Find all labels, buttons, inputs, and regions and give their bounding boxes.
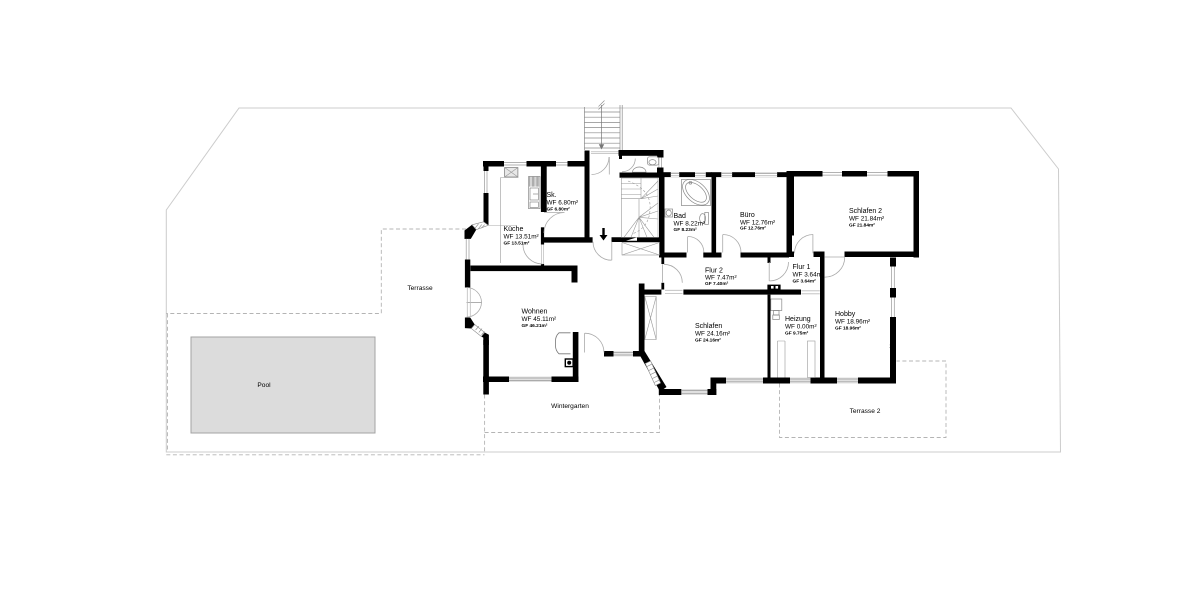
svg-text:GF 18.96m²: GF 18.96m²: [835, 326, 861, 332]
svg-text:WF 18.96m²: WF 18.96m²: [835, 319, 870, 326]
svg-text:WF 24.16m²: WF 24.16m²: [695, 331, 730, 338]
svg-text:GF 21.84m²: GF 21.84m²: [849, 223, 875, 229]
svg-text:Flur 2: Flur 2: [705, 267, 723, 274]
svg-text:WF 8.22m²: WF 8.22m²: [674, 221, 706, 228]
svg-text:WF 45.11m²: WF 45.11m²: [522, 316, 557, 323]
svg-text:WF 12.76m²: WF 12.76m²: [740, 219, 775, 226]
svg-text:Wintergarten: Wintergarten: [551, 403, 589, 410]
svg-text:WF 6.80m²: WF 6.80m²: [547, 200, 579, 207]
svg-text:WF 21.84m²: WF 21.84m²: [849, 216, 884, 223]
svg-text:WF 3.64m²: WF 3.64m²: [793, 272, 825, 279]
svg-text:Sk.: Sk.: [547, 192, 557, 199]
svg-text:Schlafen 2: Schlafen 2: [849, 208, 882, 215]
svg-text:GF 46.21m²: GF 46.21m²: [522, 323, 548, 329]
svg-text:Terrasse 2: Terrasse 2: [850, 408, 881, 415]
svg-text:www.grundrisse.com: www.grundrisse.com: [888, 328, 893, 369]
svg-text:Büro: Büro: [740, 212, 755, 219]
svg-text:GF 13.51m²: GF 13.51m²: [504, 240, 530, 246]
svg-text:Flur 1: Flur 1: [793, 264, 811, 271]
svg-text:Hobby: Hobby: [835, 311, 856, 318]
svg-text:WF 0.00m²: WF 0.00m²: [785, 324, 817, 331]
svg-text:GF 6.80m²: GF 6.80m²: [547, 206, 571, 212]
svg-text:GF 8.23m²: GF 8.23m²: [674, 227, 698, 233]
svg-text:GF 3.64m²: GF 3.64m²: [793, 279, 817, 285]
svg-text:WF 7.47m²: WF 7.47m²: [705, 275, 737, 282]
svg-text:Wohnen: Wohnen: [522, 309, 548, 316]
svg-text:Heizung: Heizung: [785, 316, 811, 323]
svg-text:GF 7.40m²: GF 7.40m²: [705, 281, 729, 287]
svg-text:WF 13.51m²: WF 13.51m²: [504, 234, 539, 241]
svg-text:Terrasse: Terrasse: [407, 285, 433, 292]
svg-text:GF 9.75m²: GF 9.75m²: [785, 331, 809, 337]
svg-text:GF 12.76m²: GF 12.76m²: [740, 226, 766, 232]
svg-text:Schlafen: Schlafen: [695, 323, 722, 330]
svg-text:GF 24.16m²: GF 24.16m²: [695, 338, 721, 344]
svg-text:Bad: Bad: [674, 213, 687, 220]
svg-text:Pool: Pool: [257, 382, 271, 389]
svg-text:Küche: Küche: [504, 226, 524, 233]
